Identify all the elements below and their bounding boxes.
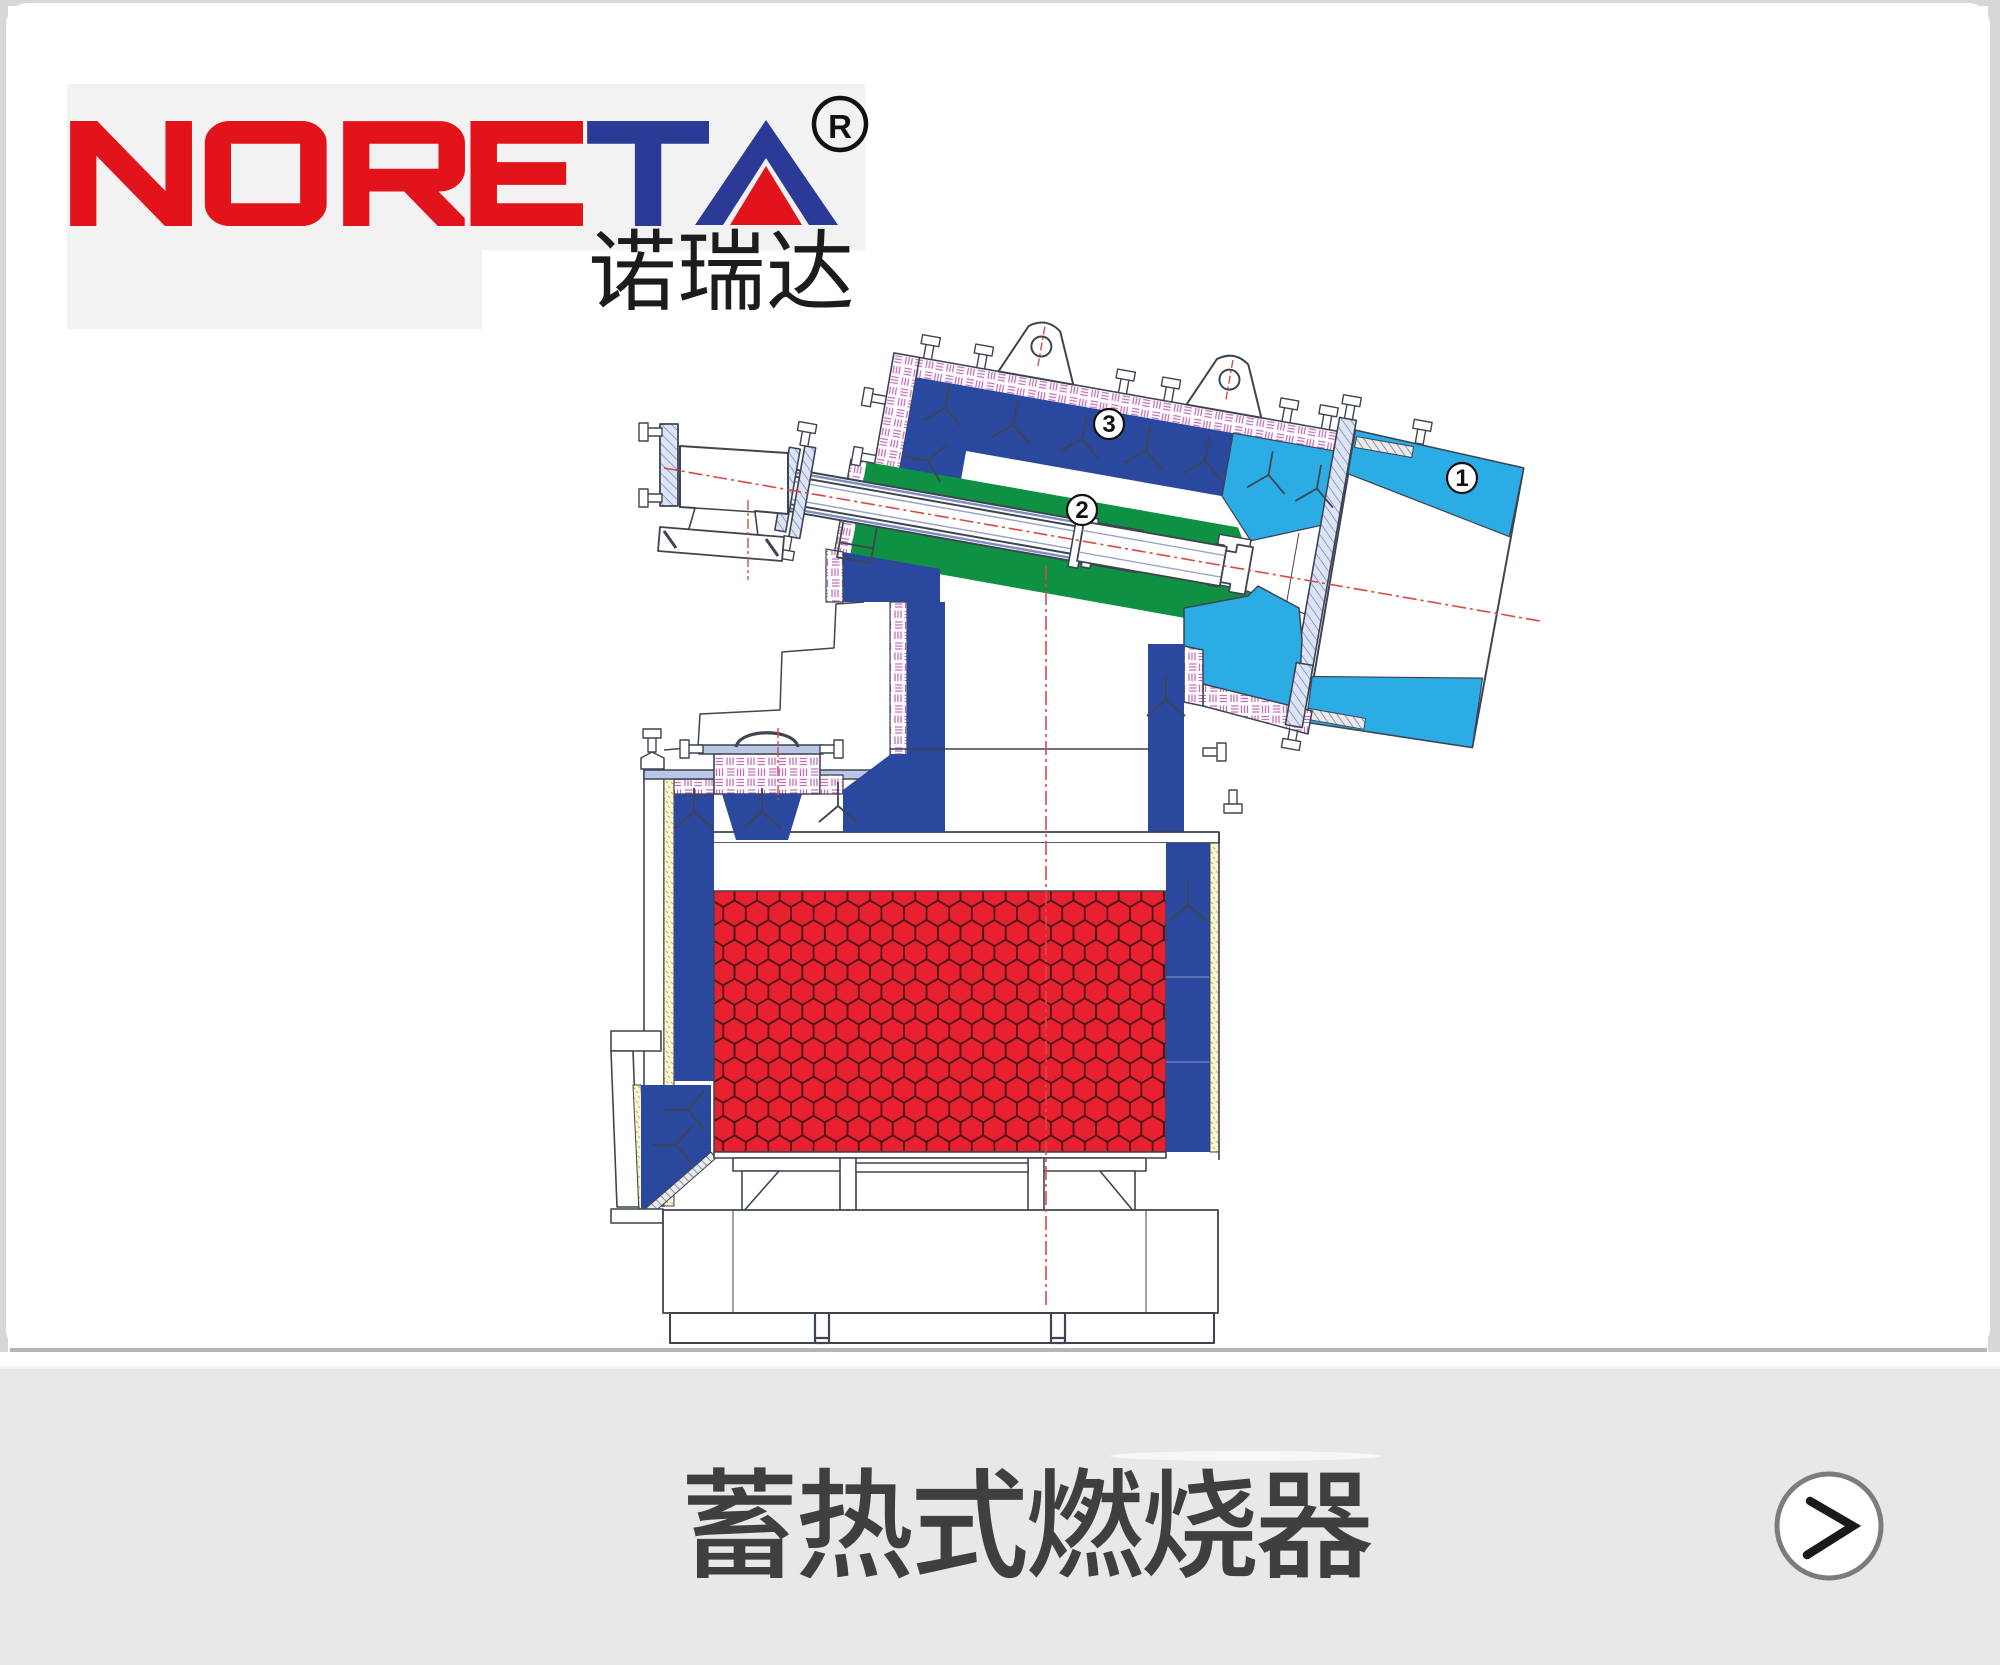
svg-text:R: R: [828, 108, 852, 145]
svg-text:3: 3: [1102, 411, 1115, 438]
svg-text:2: 2: [1075, 497, 1088, 524]
svg-text:1: 1: [1455, 465, 1468, 492]
